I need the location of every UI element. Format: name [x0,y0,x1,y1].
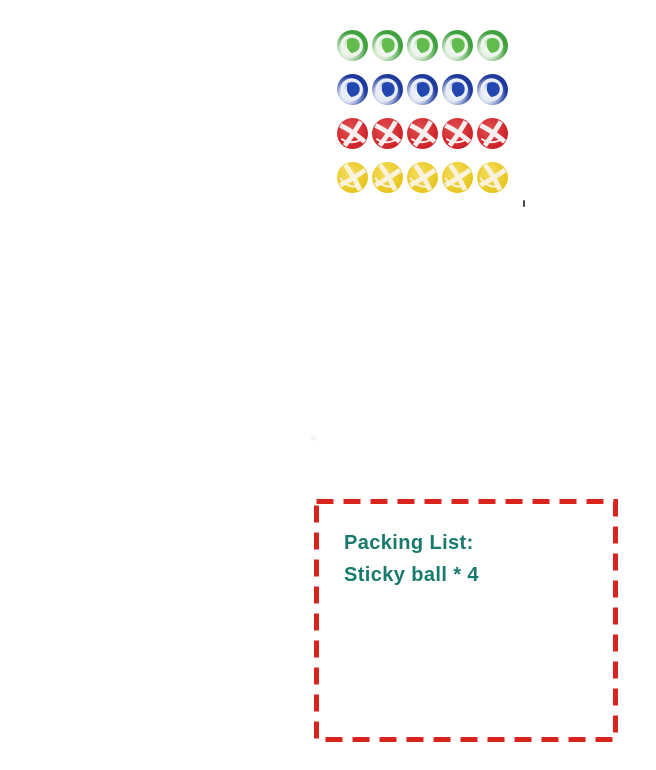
smudge-artifact [309,434,318,442]
packing-list-item: Sticky ball * 4 [344,559,479,591]
sticky-ball-green [442,30,473,61]
sticky-ball-red [372,118,403,149]
sticky-ball-red [407,118,438,149]
sticky-ball-yellow [407,162,438,193]
ball-row-red [337,118,508,149]
sticky-ball-green [337,30,368,61]
ball-row-blue [337,74,508,105]
sticky-ball-grid [337,30,508,193]
product-image-canvas: Packing List: Sticky ball * 4 [0,0,656,770]
sticky-ball-blue [372,74,403,105]
packing-list-text: Packing List: Sticky ball * 4 [344,527,479,591]
sticky-ball-yellow [337,162,368,193]
sticky-ball-red [442,118,473,149]
packing-list-box: Packing List: Sticky ball * 4 [314,499,618,742]
sticky-ball-blue [407,74,438,105]
sticky-ball-blue [477,74,508,105]
packing-list-title: Packing List: [344,527,479,559]
ball-row-green [337,30,508,61]
sticky-ball-green [407,30,438,61]
sticky-ball-yellow [477,162,508,193]
sticky-ball-yellow [372,162,403,193]
sticky-ball-yellow [442,162,473,193]
sticky-ball-red [337,118,368,149]
sticky-ball-green [372,30,403,61]
stray-mark [523,200,525,207]
sticky-ball-red [477,118,508,149]
sticky-ball-green [477,30,508,61]
sticky-ball-blue [442,74,473,105]
ball-row-yellow [337,162,508,193]
sticky-ball-blue [337,74,368,105]
